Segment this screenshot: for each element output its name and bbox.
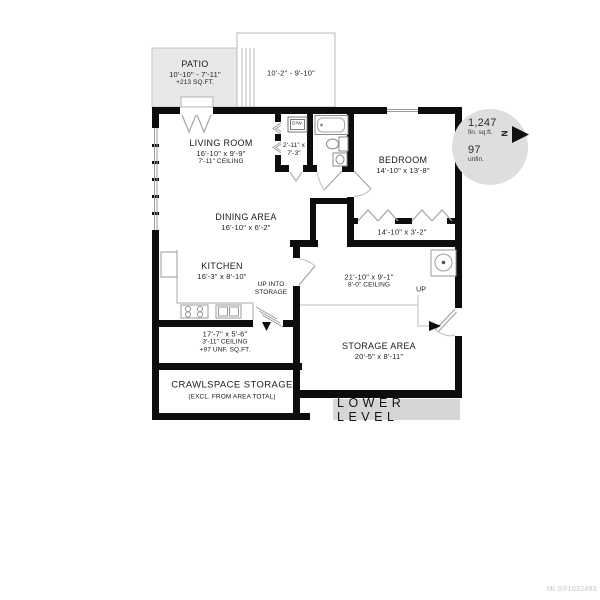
living-room-label: LIVING ROOM 16'-10" x 9'-9" 7'-11" CEILI… xyxy=(189,138,252,166)
vanity-sink-icon xyxy=(333,153,347,166)
bathtub-icon xyxy=(315,116,348,135)
area-summary: 1,247 fin. sq.ft. 97 unfin. xyxy=(468,118,497,163)
finished-sqft-value: 1,247 xyxy=(468,118,497,129)
patio-area: +213 SQ.FT. xyxy=(176,79,214,87)
water-heater-icon xyxy=(431,250,456,276)
bedroom-closet-label: 14'-10" x 3'-2" xyxy=(377,227,426,236)
deck-label: 10'-2" - 9'-10" xyxy=(267,68,315,77)
bedroom-label: BEDROOM 14'-10" x 13'-8" xyxy=(376,155,430,175)
patio-dims: 10'-10" - 7'-11" xyxy=(169,70,221,79)
patio-label: PATIO 10'-10" - 7'-11" +213 SQ.FT. xyxy=(169,59,221,87)
north-letter: N xyxy=(499,131,508,137)
deck-dims: 10'-2" - 9'-10" xyxy=(267,68,315,77)
patio-french-door-icon xyxy=(182,115,211,132)
patio-name: PATIO xyxy=(181,59,208,70)
hall-door-icon xyxy=(299,259,315,285)
dining-area-label: DINING AREA 16'-10" x 6'-2" xyxy=(215,212,276,232)
stairs-icon xyxy=(256,307,283,331)
bathroom-door-icon xyxy=(317,171,342,190)
storage-area-label: STORAGE AREA 20'-5" x 8'-11" xyxy=(342,341,416,361)
kitchen-label: KITCHEN 16'-3" x 8'-10" xyxy=(197,261,246,281)
bedroom-window xyxy=(387,107,418,114)
up-label: UP xyxy=(416,287,426,294)
hall-path-lines xyxy=(300,295,429,326)
finished-sqft-label: fin. sq.ft. xyxy=(468,130,497,137)
sink-icon xyxy=(216,305,241,318)
under-stair-storage-label: 17'-7" x 5'-6" 3'-11" CEILING +97 UNF. S… xyxy=(200,330,251,355)
hall-label: 21'-10" x 9'-1" 8'-0" CEILING xyxy=(344,272,393,289)
laundry-closet-label: 2'-11" x 7'-3" xyxy=(283,142,305,158)
up-into-storage-label: UP INTO STORAGE xyxy=(255,281,287,297)
entry-door-icon xyxy=(435,309,457,336)
crawlspace-label: CRAWLSPACE STORAGE (EXCL. FROM AREA TOTA… xyxy=(171,379,293,401)
washer-dryer-label: D/W xyxy=(292,122,302,127)
toilet-icon xyxy=(327,137,349,151)
level-label: LOWER LEVEL xyxy=(333,396,460,424)
stove-icon xyxy=(181,305,208,318)
unfinished-sqft-value: 97 xyxy=(468,145,497,156)
unfinished-sqft-label: unfin. xyxy=(468,157,497,164)
patio-door-threshold xyxy=(181,97,213,107)
floor-plan-drawing xyxy=(0,0,600,600)
refrigerator-icon xyxy=(161,252,177,277)
floor-plan: PATIO 10'-10" - 7'-11" +213 SQ.FT. 10'-2… xyxy=(0,0,600,600)
bedroom-door-icon xyxy=(354,171,371,196)
mls-number: MLS®1032493 xyxy=(547,586,597,593)
level-label-bar: LOWER LEVEL xyxy=(333,399,460,420)
